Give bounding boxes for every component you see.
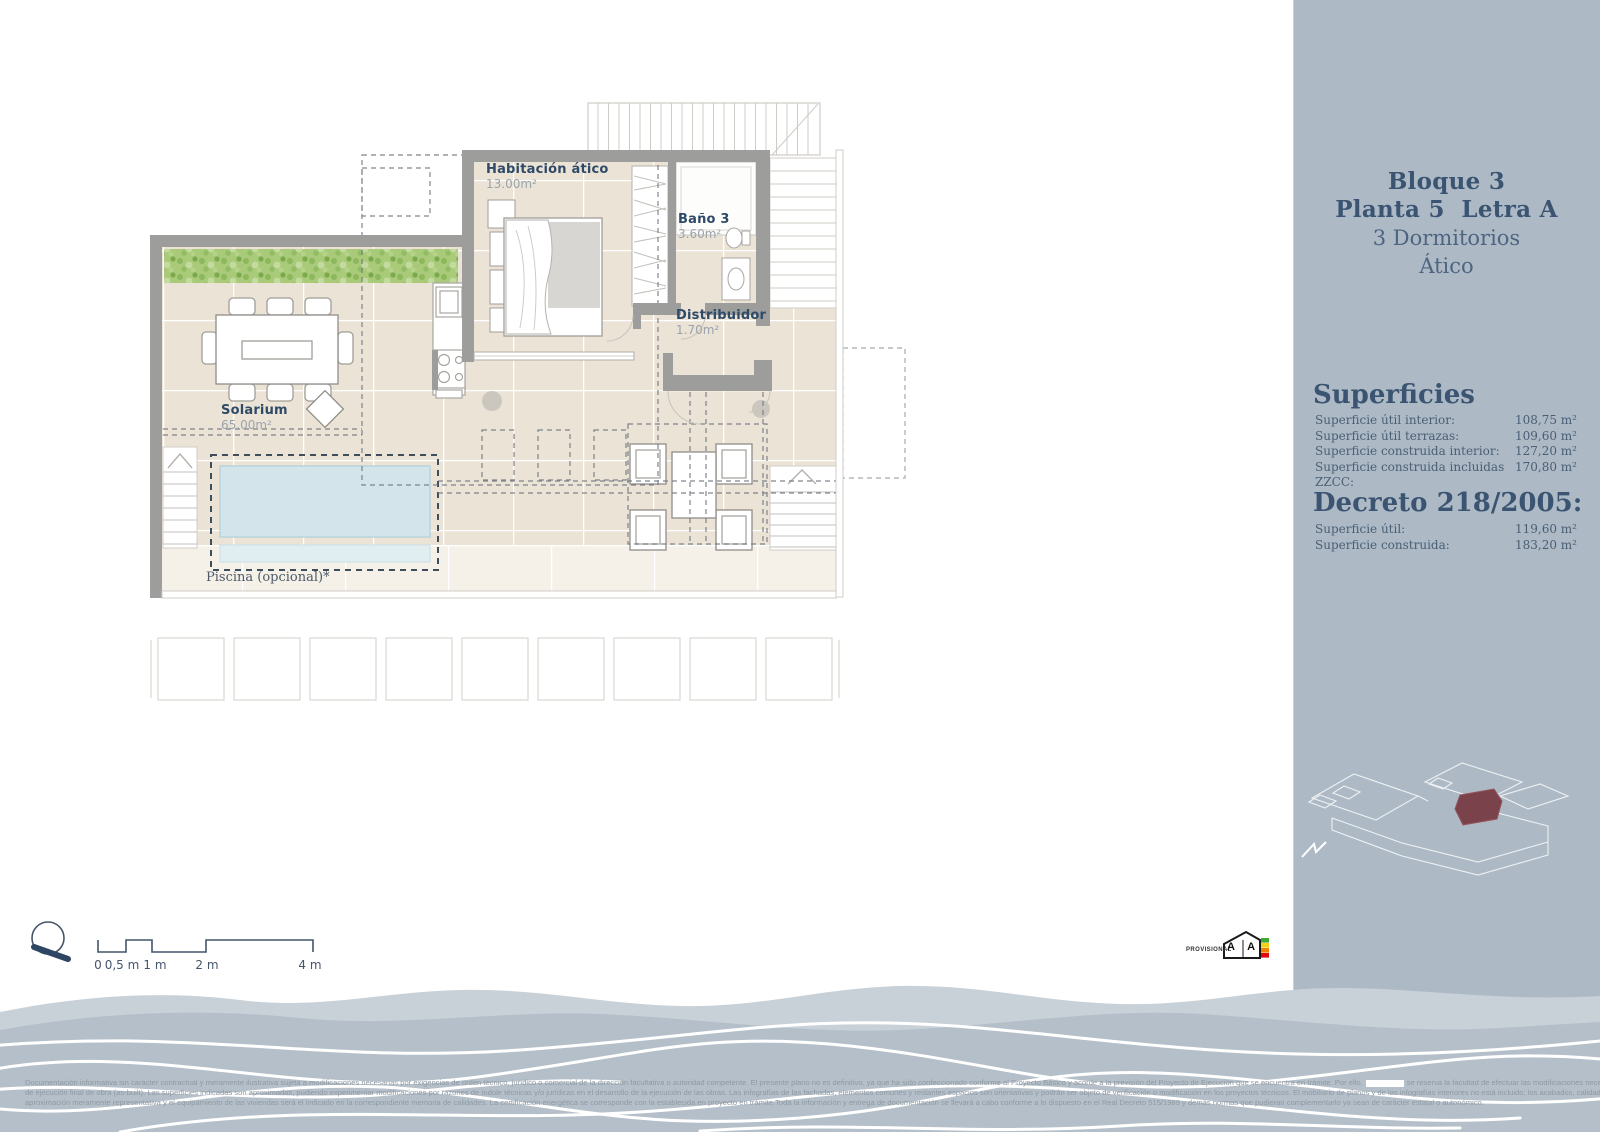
row-value: 108,75 m² [1515, 413, 1577, 429]
table-row: Superficie útil interior: 108,75 m² [1315, 413, 1577, 429]
wardrobe [632, 166, 668, 306]
row-label: Superficie útil interior: [1315, 413, 1455, 429]
row-label: Superficie construida interior: [1315, 444, 1500, 460]
room-name: Solarium [221, 403, 288, 418]
stairs-top-right [770, 158, 838, 308]
table-row: Superficie construida incluidas ZZCC: 17… [1315, 460, 1577, 491]
table-row: Superficie construida interior: 127,20 m… [1315, 444, 1577, 460]
minimap-north-icon [1302, 842, 1326, 857]
room-label-habitacion: Habitación ático 13.00m² [486, 162, 609, 192]
room-name: Habitación ático [486, 162, 609, 177]
unit-title-block: Bloque 3 Planta 5 Letra A 3 Dormitorios … [1293, 168, 1600, 280]
redacted-name-box [1366, 1080, 1404, 1087]
row-value: 170,80 m² [1515, 460, 1577, 491]
bed [488, 200, 602, 336]
wave-decoration [0, 986, 1600, 1132]
room-label-solarium: Solarium 65.00m² [221, 403, 288, 433]
scale-label-1m: 1 m [143, 958, 166, 972]
decreto-table: Superficie útil: 119,60 m² Superficie co… [1315, 522, 1577, 553]
superficies-table: Superficie útil interior: 108,75 m² Supe… [1315, 413, 1577, 491]
table-row: Superficie construida: 183,20 m² [1315, 538, 1577, 554]
disclaimer-line-2: de ejecución final de obra (as-built). L… [25, 1088, 1600, 1098]
pool [211, 455, 438, 570]
glass-door-front [474, 352, 634, 360]
planter-pot [752, 400, 770, 418]
pool-label: Piscina (opcional)* [206, 570, 330, 585]
row-label: Superficie construida: [1315, 538, 1450, 554]
highlighted-unit [1455, 789, 1502, 825]
room-name: Distribuidor [676, 308, 766, 323]
title-planta-letra: Planta 5 Letra A [1293, 196, 1600, 224]
north-compass-icon [32, 922, 68, 959]
decreto-heading: Decreto 218/2005: [1313, 488, 1582, 518]
energy-rating-text: A A [1227, 941, 1260, 953]
hedge-planter [164, 249, 458, 283]
row-label: Superficie útil: [1315, 522, 1405, 538]
room-label-distribuidor: Distribuidor 1.70m² [676, 308, 766, 338]
title-atico: Ático [1293, 252, 1600, 280]
row-label: Superficie construida incluidas ZZCC: [1315, 460, 1515, 491]
row-value: 127,20 m² [1515, 444, 1577, 460]
superficies-heading: Superficies [1313, 380, 1475, 410]
room-area: 3.60m² [678, 227, 730, 242]
room-area: 1.70m² [676, 323, 766, 338]
scale-label-2m: 2 m [195, 958, 218, 972]
row-value: 109,60 m² [1515, 429, 1577, 445]
roof-pergola [588, 103, 820, 155]
provisional-label: PROVISIONAL [1186, 947, 1232, 953]
site-minimap [1309, 763, 1568, 875]
scale-label-4m: 4 m [298, 958, 321, 972]
scale-label-05m: 0,5 m [105, 958, 140, 972]
louvre-panels [151, 638, 839, 700]
table-row: Superficie útil: 119,60 m² [1315, 522, 1577, 538]
room-area: 65.00m² [221, 418, 288, 433]
table-row: Superficie útil terrazas: 109,60 m² [1315, 429, 1577, 445]
room-name: Baño 3 [678, 212, 730, 227]
stairs-right [770, 466, 840, 550]
planter-pot [482, 391, 502, 411]
title-bloque: Bloque 3 [1293, 168, 1600, 196]
room-area: 13.00m² [486, 177, 609, 192]
row-value: 119,60 m² [1515, 522, 1577, 538]
disclaimer-text: Documentación informativa sin carácter c… [25, 1078, 1363, 1087]
disclaimer-text: se reserva la facultad de efectuar las m… [1407, 1078, 1600, 1087]
stairs-left [163, 447, 197, 548]
row-value: 183,20 m² [1515, 538, 1577, 554]
room-label-bano: Baño 3 3.60m² [678, 212, 730, 242]
floorplan-brochure-page: Habitación ático 13.00m² Baño 3 3.60m² D… [0, 0, 1600, 1132]
row-label: Superficie útil terrazas: [1315, 429, 1459, 445]
scale-bar [98, 940, 313, 952]
title-dormitorios: 3 Dormitorios [1293, 224, 1600, 252]
disclaimer-line-1: Documentación informativa sin carácter c… [25, 1078, 1600, 1088]
scale-label-0: 0 [94, 958, 102, 972]
disclaimer-line-3: aproximación meramente representativa y … [25, 1098, 1484, 1108]
